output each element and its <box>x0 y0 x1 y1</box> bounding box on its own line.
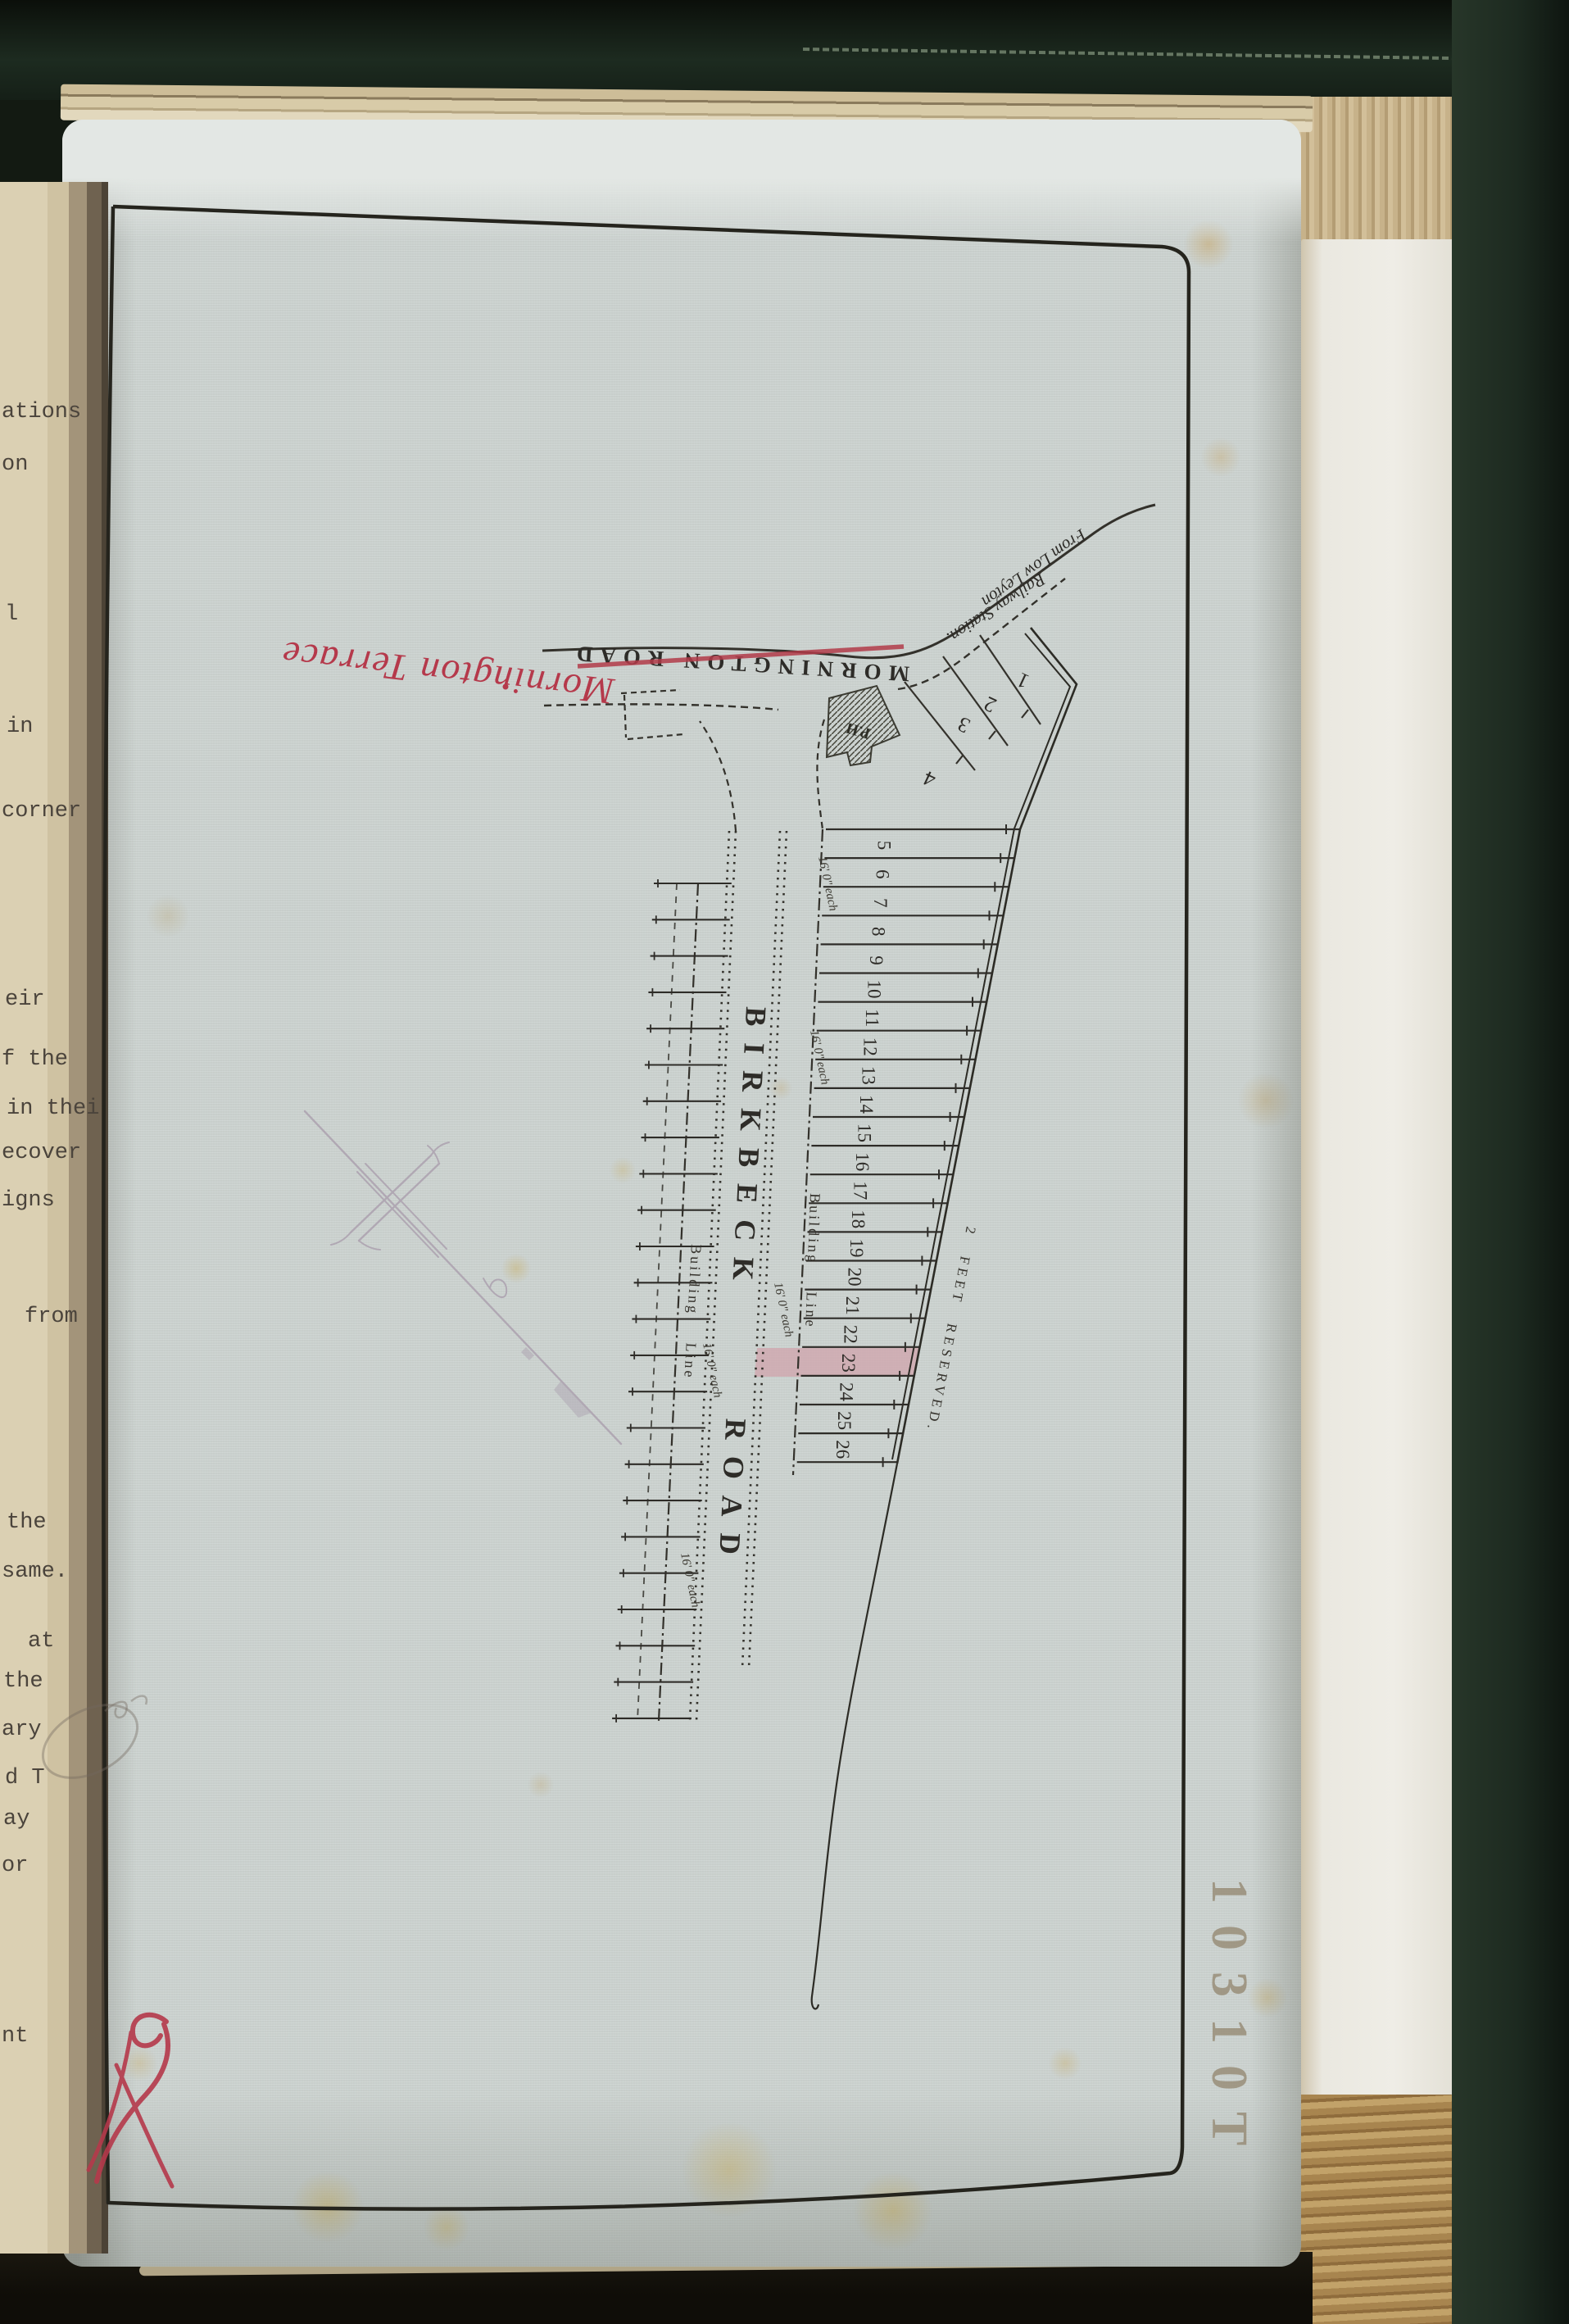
typewritten-fragment: d T <box>5 1766 45 1791</box>
typewritten-fragment: the <box>7 1510 47 1535</box>
typewritten-fragment: in thei <box>7 1096 99 1121</box>
typewritten-fragment: igns <box>2 1188 55 1213</box>
book-cover-top-edge <box>0 0 1569 100</box>
typewritten-fragment: ecover <box>2 1141 81 1165</box>
typewritten-fragment: at <box>28 1629 54 1654</box>
typewritten-fragment: or <box>2 1854 28 1878</box>
typewritten-fragment: f the <box>2 1047 68 1072</box>
sheet-shading <box>62 120 1301 2267</box>
loose-white-paper <box>1301 239 1455 2101</box>
typewritten-fragment: ay <box>3 1807 29 1832</box>
typewritten-fragment: l <box>5 602 18 627</box>
typewritten-page-edge: ationsonlincornereirf thein theiecoverig… <box>0 182 108 2254</box>
typewritten-fragment: on <box>2 452 28 477</box>
typewritten-fragment: the <box>3 1669 43 1694</box>
typewritten-fragment: eir <box>5 987 45 1012</box>
typewritten-fragment: corner <box>2 799 81 824</box>
linen-plan-sheet <box>62 120 1301 2267</box>
typewritten-fragment: from <box>25 1305 78 1329</box>
photograph-of-bound-plan: ationsonlincornereirf thein theiecoverig… <box>0 0 1569 2324</box>
typewritten-fragment: nt <box>2 2024 28 2049</box>
typewritten-fragment: ary <box>2 1718 42 1742</box>
book-cover-right <box>1452 0 1569 2324</box>
typewritten-fragment: same. <box>2 1559 68 1584</box>
typewritten-fragment: in <box>7 715 33 739</box>
typewritten-fragment: ations <box>2 400 81 424</box>
